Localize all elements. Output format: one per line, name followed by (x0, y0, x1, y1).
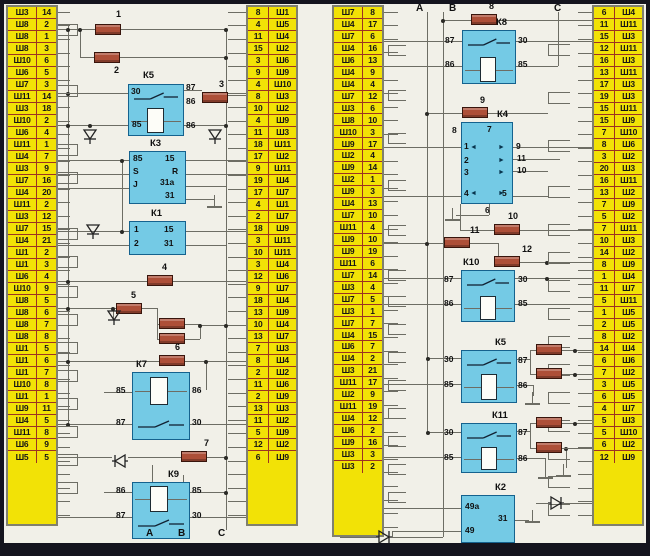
wire-segment (226, 29, 227, 530)
pin-number: 13 (363, 55, 382, 66)
direction-arrow-icon: ► (498, 169, 505, 176)
relay-pin-86: 86 (192, 386, 201, 395)
connector-row: 11Ш4 (248, 31, 296, 43)
connector-stub (578, 420, 592, 421)
connector-bracket (58, 482, 78, 494)
connector-label: Ш11 (615, 295, 642, 306)
connector-stub (228, 148, 246, 149)
connector-label: Ш4 (269, 295, 296, 306)
connector-row: 5Ш3 (594, 415, 642, 427)
connector-label: Ш1 (8, 355, 37, 366)
relay-pin-86: 86 (186, 121, 195, 130)
connector-label: Ш10 (615, 427, 642, 438)
connector-label: Ш8 (8, 31, 37, 42)
connector-stub (228, 433, 246, 434)
wire-segment (185, 361, 246, 362)
connector-row: 3Ш4 (248, 259, 296, 271)
connector-row: Ш65 (8, 67, 56, 79)
connector-stub (58, 515, 70, 516)
connector-row: 5Ш11 (594, 295, 642, 307)
pin-number: 2 (37, 199, 56, 210)
resistor-6 (159, 355, 185, 366)
connector-stub (578, 93, 592, 94)
connector-row: Ш710 (334, 210, 382, 222)
connector-stub (228, 501, 246, 502)
connector-label: Ш3 (334, 305, 363, 316)
pin-number: 12 (37, 211, 56, 222)
connector-stub (578, 352, 592, 353)
connector-row: 15Ш2 (248, 43, 296, 55)
connector-stub (578, 216, 592, 217)
connector-stub (384, 337, 398, 338)
connector-label: Ш7 (334, 294, 363, 305)
wire-junction-dot (66, 307, 70, 311)
connector-row: 2Ш9 (248, 391, 296, 403)
connector-row: 10Ш2 (248, 103, 296, 115)
wire-segment (513, 196, 548, 197)
connector-stub (228, 66, 246, 67)
relay-pin-30: 30 (444, 355, 453, 364)
connector-row: 8Ш1 (248, 7, 296, 19)
connector-stub (228, 474, 246, 475)
relay-pin-87: 87 (518, 428, 527, 437)
relay-contact-icon (136, 418, 186, 434)
connector-row: Ш86 (8, 307, 56, 319)
connector-label: Ш4 (615, 7, 642, 18)
resistor-label: 5 (131, 291, 136, 300)
connector-stub (58, 121, 70, 122)
connector-row: Ш919 (334, 246, 382, 258)
connector-stub (384, 12, 398, 13)
pin-number: 11 (37, 403, 56, 414)
pin-number: 11 (248, 31, 269, 42)
connector-row: Ш420 (8, 187, 56, 199)
connector-stub (578, 202, 592, 203)
connector-row: Ш114 (334, 222, 382, 234)
connector-label: Ш4 (8, 235, 37, 246)
connector-label: Ш7 (269, 283, 296, 294)
connector-stub (228, 488, 246, 489)
resistor-3 (202, 92, 228, 103)
connector-label: Ш2 (269, 367, 296, 378)
connector-stub (578, 406, 592, 407)
relay-contact-icon (465, 356, 513, 372)
pin-number: 14 (363, 162, 382, 173)
pin-number: 14 (37, 91, 56, 102)
connector-row: Ш916 (334, 437, 382, 449)
connector-stub (58, 338, 70, 339)
connector-row: 6Ш2 (594, 439, 642, 451)
wire-segment (122, 160, 123, 231)
coil-lead (464, 387, 481, 388)
connector-bracket (388, 90, 406, 101)
relay-pin-15: 15 (165, 154, 174, 163)
diode-icon (106, 309, 122, 325)
connector-stub (384, 527, 398, 528)
connector-label: Ш2 (615, 439, 642, 450)
ground-bar-icon (445, 219, 460, 221)
connector-label: Ш8 (8, 19, 37, 30)
pin-number: 2 (248, 391, 269, 402)
pin-number: 7 (37, 151, 56, 162)
connector-row: Ш21 (334, 174, 382, 186)
connector-row: 2Ш7 (248, 211, 296, 223)
wire-junction-dot (426, 431, 430, 435)
rail-letter-top-А: А (416, 4, 423, 14)
connector-label: Ш1 (8, 247, 37, 258)
relay-pin-85: 85 (518, 60, 527, 69)
connector-label: Ш10 (8, 55, 37, 66)
pin-number: 12 (248, 271, 269, 282)
pin-number: 10 (363, 210, 382, 221)
pin-number: 11 (594, 283, 615, 294)
connector-stub (228, 39, 246, 40)
connector-stub (228, 12, 246, 13)
pin-number: 16 (363, 437, 382, 448)
connector-stub (578, 284, 592, 285)
relay-pin-6: 6 (485, 206, 490, 215)
connector-row: Ш715 (8, 223, 56, 235)
connector-row: 18Ш11 (248, 139, 296, 151)
relay-pin-S: S (133, 167, 139, 176)
connector-label: Ш2 (615, 247, 642, 258)
connector-row: Ш33 (334, 449, 382, 461)
ground-stem (532, 510, 533, 521)
pin-number: 3 (248, 259, 269, 270)
coil-lead (497, 387, 514, 388)
pin-number: 9 (248, 283, 269, 294)
connector-row: Ш413 (334, 198, 382, 210)
pin-number: 4 (594, 403, 615, 414)
connector-stub (578, 297, 592, 298)
relay-pin-31а: 31а (160, 178, 174, 187)
connector-label: Ш10 (8, 115, 37, 126)
relay-pin-3: 3 (464, 168, 469, 177)
wire-segment (530, 350, 531, 374)
relay-pin-10: 10 (517, 166, 526, 175)
connector-label: Ш6 (334, 55, 363, 66)
connector-label: Ш7 (334, 91, 363, 102)
relay-pin-85: 85 (518, 299, 527, 308)
pin-number: 19 (363, 246, 382, 257)
connector-stub (228, 379, 246, 380)
wire-segment (470, 243, 498, 244)
pin-number: 7 (594, 223, 615, 234)
coil-lead (135, 391, 150, 392)
resistor-label: 6 (175, 343, 180, 352)
connector-label: Ш4 (8, 151, 37, 162)
connector-label: Ш4 (334, 79, 363, 90)
resistor-4 (147, 275, 173, 286)
pin-number: 15 (594, 115, 615, 126)
pin-number: 7 (594, 127, 615, 138)
connector-row: Ш613 (334, 55, 382, 67)
relay-pin-30: 30 (518, 275, 527, 284)
connector-row: Ш914 (334, 162, 382, 174)
connector-stub (58, 202, 70, 203)
pin-number: 1 (37, 139, 56, 150)
connector-stub (384, 147, 398, 148)
connector-label: Ш4 (334, 67, 363, 78)
connector-row: 8Ш3 (248, 91, 296, 103)
connector-column-col2: 8Ш14Ш511Ш415Ш23Ш69Ш94Ш108Ш310Ш24Ш911Ш318… (246, 5, 298, 526)
connector-label: Ш1 (269, 7, 296, 18)
pin-number: 16 (37, 175, 56, 186)
wire-segment (185, 339, 200, 340)
connector-row: Ш73 (8, 79, 56, 91)
wire-junction-dot (120, 230, 124, 234)
connector-column-col4: 6Ш411Ш1115Ш312Ш1116Ш313Ш1117Ш319Ш315Ш111… (592, 5, 644, 526)
wire-junction-dot (573, 422, 577, 426)
connector-row: Ш75 (334, 294, 382, 306)
connector-stub (228, 121, 246, 122)
connector-label: Ш2 (269, 103, 296, 114)
connector-label: Ш4 (269, 31, 296, 42)
pin-number: 3 (594, 379, 615, 390)
connector-row: 4Ш9 (248, 115, 296, 127)
resistor-9 (462, 107, 488, 118)
connector-stub (58, 311, 70, 312)
wire-junction-dot (224, 56, 228, 60)
connector-bracket (58, 228, 78, 240)
connector-stub (58, 365, 70, 366)
connector-label: Ш9 (334, 186, 363, 197)
wire-junction-dot (573, 373, 577, 377)
relay-pin-30: 30 (444, 428, 453, 437)
connector-stub (58, 420, 70, 421)
connector-stub (384, 80, 398, 81)
pin-number: 17 (594, 79, 615, 90)
direction-arrow-icon: ► (498, 144, 505, 151)
connector-label: Ш2 (334, 389, 363, 400)
connector-label: Ш8 (8, 295, 37, 306)
pin-number: 1 (363, 174, 382, 185)
connector-label: Ш9 (269, 451, 296, 463)
connector-label: Ш6 (8, 271, 37, 282)
connector-label: Ш2 (615, 331, 642, 342)
connector-label: Ш5 (8, 451, 37, 463)
connector-stub (578, 80, 592, 81)
pin-number: 3 (363, 449, 382, 460)
pin-number: 16 (594, 175, 615, 186)
relay-pin-2: 2 (464, 156, 469, 165)
diode-icon (112, 454, 128, 470)
connector-label: Ш1 (8, 259, 37, 270)
connector-bracket (388, 436, 406, 447)
pin-number: 6 (594, 391, 615, 402)
relay-pin-30: 30 (131, 87, 140, 96)
pin-number: 9 (363, 389, 382, 400)
connector-row: Ш16 (8, 355, 56, 367)
connector-row: Ш11 (8, 391, 56, 403)
connector-stub (578, 12, 592, 13)
connector-label: Ш8 (8, 319, 37, 330)
connector-row: Ш112 (8, 199, 56, 211)
relay-pin-2: 2 (134, 239, 139, 248)
connector-stub (384, 242, 398, 243)
connector-stub (578, 175, 592, 176)
connector-stub (578, 461, 592, 462)
connector-label: Ш4 (334, 329, 363, 340)
pin-number: 5 (37, 451, 56, 463)
relay-pin-49а: 49а (465, 502, 479, 511)
wire-junction-dot (224, 124, 228, 128)
connector-label: Ш2 (334, 174, 363, 185)
connector-stub (58, 161, 70, 162)
connector-label: Ш11 (269, 247, 296, 258)
wire-junction-dot (224, 456, 228, 460)
pin-number: 5 (37, 67, 56, 78)
relay-coil (480, 57, 496, 82)
connector-row: 7Ш3 (248, 343, 296, 355)
wire-junction-dot (88, 124, 92, 128)
resistor-1 (95, 24, 121, 35)
connector-stub (578, 66, 592, 67)
pin-number: 5 (37, 295, 56, 306)
connector-row: 15Ш3 (594, 31, 642, 43)
resistor-label: 9 (480, 96, 485, 105)
connector-row: Ш93 (334, 186, 382, 198)
connector-label: Ш7 (269, 211, 296, 222)
wire-junction-dot (441, 19, 445, 23)
connector-row: Ш910 (334, 234, 382, 246)
connector-stub (384, 161, 398, 162)
connector-row: Ш103 (334, 126, 382, 138)
wire-segment (121, 29, 226, 30)
connector-stub (58, 12, 70, 13)
pin-number: 21 (37, 235, 56, 246)
connector-label: Ш2 (269, 43, 296, 54)
connector-stub (578, 243, 592, 244)
connector-label: Ш6 (8, 67, 37, 78)
connector-label: Ш7 (269, 187, 296, 198)
relay-title: К5 (143, 71, 154, 81)
connector-stub (228, 406, 246, 407)
ground-stem (563, 464, 564, 475)
pin-number: 15 (248, 43, 269, 54)
wire-junction-dot (198, 324, 202, 328)
connector-row: 11Ш11 (594, 19, 642, 31)
connector-bracket (548, 140, 570, 152)
connector-bracket (388, 380, 406, 391)
connector-row: Ш64 (8, 271, 56, 283)
connector-row: 14Ш4 (594, 343, 642, 355)
connector-label: Ш11 (8, 139, 37, 150)
wire-segment (427, 12, 428, 432)
pin-number: 1 (37, 391, 56, 402)
connector-bracket (58, 370, 78, 382)
direction-arrow-icon: ► (498, 157, 505, 164)
connector-stub (228, 80, 246, 81)
pin-number: 6 (37, 307, 56, 318)
connector-row: 16Ш11 (594, 175, 642, 187)
connector-bracket (388, 296, 406, 307)
pin-number: 4 (37, 127, 56, 138)
connector-stub (578, 365, 592, 366)
pin-number: 17 (248, 151, 269, 162)
pin-number: 16 (594, 55, 615, 66)
pin-number: 8 (248, 7, 269, 18)
pin-number: 10 (594, 235, 615, 246)
relay-pin-87: 87 (444, 275, 453, 284)
connector-bracket (548, 224, 570, 236)
resistor-label: 3 (219, 80, 224, 89)
relay-pin-9: 9 (516, 142, 521, 151)
wiring-diagram: Ш314Ш82Ш81Ш83Ш106Ш65Ш73Ш1114Ш318Ш102Ш64Ш… (4, 4, 646, 543)
connector-label: Ш11 (334, 258, 363, 269)
connector-label: Ш5 (615, 379, 642, 390)
connector-row: Ш69 (8, 439, 56, 451)
relay-pin-87: 87 (518, 356, 527, 365)
connector-stub (578, 229, 592, 230)
pin-number: 2 (37, 115, 56, 126)
relay-pin-87: 87 (116, 511, 125, 520)
connector-row: 11Ш7 (594, 283, 642, 295)
relay-pin-31: 31 (165, 191, 174, 200)
direction-arrow-icon: ► (498, 190, 505, 197)
pin-number: 9 (37, 283, 56, 294)
wire-segment (427, 113, 462, 114)
relay-pin-85: 85 (444, 380, 453, 389)
bottom-border-strip (0, 543, 650, 556)
wire-junction-dot (66, 124, 70, 128)
connector-label: Ш3 (615, 415, 642, 426)
connector-bracket (388, 492, 406, 503)
connector-row: Ш39 (8, 163, 56, 175)
connector-row: Ш12 (8, 247, 56, 259)
connector-stub (384, 405, 398, 406)
connector-label: Ш4 (269, 355, 296, 366)
connector-row: Ш318 (8, 103, 56, 115)
connector-row: Ш44 (334, 79, 382, 91)
connector-label: Ш11 (269, 163, 296, 174)
connector-stub (228, 297, 246, 298)
connector-row: 7Ш2 (594, 367, 642, 379)
pin-number: 7 (37, 367, 56, 378)
connector-bracket (388, 324, 406, 335)
connector-stub (228, 420, 246, 421)
relay-pin-87: 87 (445, 36, 454, 45)
connector-row: 10Ш3 (594, 235, 642, 247)
connector-row: Ш712 (334, 91, 382, 103)
connector-label: Ш9 (269, 307, 296, 318)
connector-label: Ш9 (334, 138, 363, 149)
connector-stub (58, 447, 70, 448)
connector-label: Ш3 (8, 211, 37, 222)
connector-row: Ш111 (8, 139, 56, 151)
connector-stub (228, 515, 246, 516)
connector-label: Ш5 (615, 391, 642, 402)
pin-number: 3 (363, 126, 382, 137)
connector-stub (58, 80, 70, 81)
connector-row: 3Ш2 (594, 151, 642, 163)
connector-row: 12Ш9 (594, 451, 642, 463)
connector-label: Ш9 (269, 427, 296, 438)
pin-number: 9 (248, 163, 269, 174)
connector-row: 8Ш9 (594, 259, 642, 271)
connector-label: Ш10 (334, 126, 363, 137)
connector-row: 2Ш5 (594, 319, 642, 331)
connector-label: Ш11 (615, 103, 642, 114)
connector-row: Ш77 (334, 317, 382, 329)
relay-pin-86: 86 (518, 381, 527, 390)
relay-pin-J: J (133, 180, 138, 189)
connector-row: Ш1117 (334, 377, 382, 389)
wire-junction-dot (224, 491, 228, 495)
connector-label: Ш5 (615, 319, 642, 330)
connector-label: Ш9 (8, 403, 37, 414)
connector-label: Ш3 (8, 163, 37, 174)
